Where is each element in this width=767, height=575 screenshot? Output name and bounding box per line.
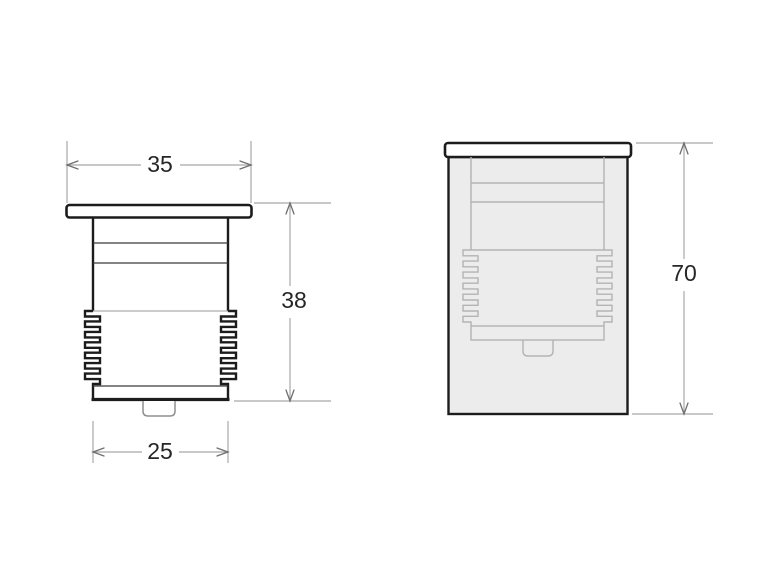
front-connector-tab xyxy=(143,401,175,416)
front-flange xyxy=(67,205,252,218)
dimension-label: 70 xyxy=(671,260,697,286)
drawing-svg: 35 38 25 xyxy=(0,0,767,575)
dimension-overall-height: 70 xyxy=(632,143,713,414)
front-view xyxy=(67,205,252,416)
front-heatsink-fins-left xyxy=(85,311,100,400)
installed-flange xyxy=(445,143,631,157)
dimension-flange-width: 35 xyxy=(67,141,251,203)
installed-view xyxy=(445,143,631,414)
mounting-sleeve xyxy=(449,157,628,414)
dimension-label: 38 xyxy=(281,287,307,313)
dimension-body-width: 25 xyxy=(93,421,228,464)
dimension-label: 35 xyxy=(147,151,173,177)
technical-drawing: 35 38 25 xyxy=(0,0,767,575)
dimension-label: 25 xyxy=(147,438,173,464)
dimension-height: 38 xyxy=(234,203,331,401)
front-heatsink-fins-right xyxy=(221,311,236,400)
